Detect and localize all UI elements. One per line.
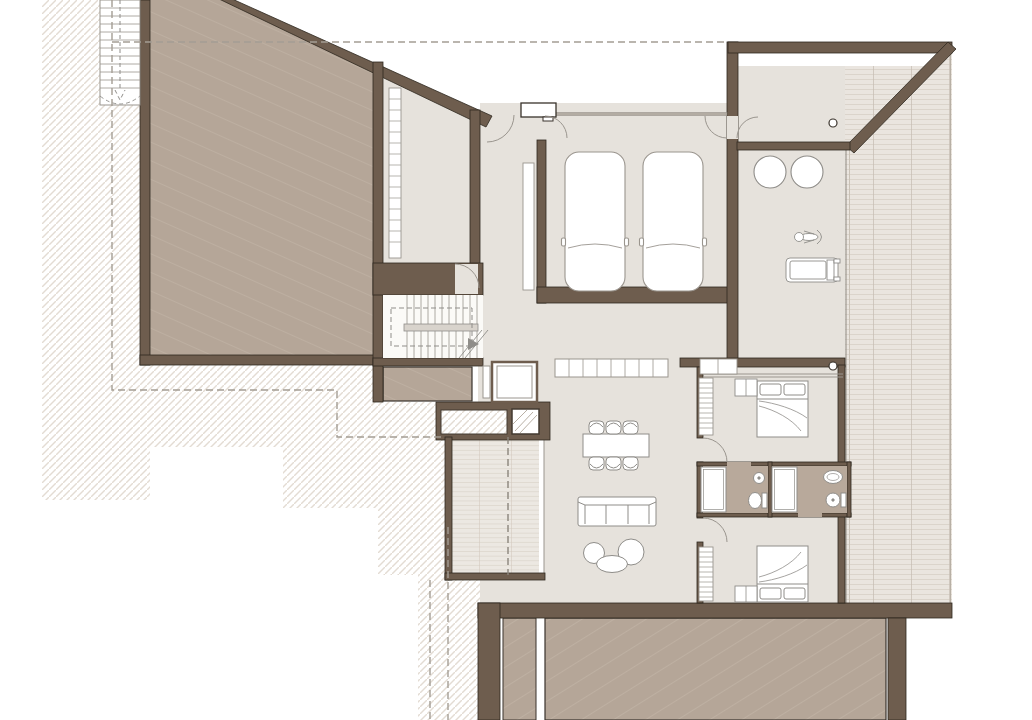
exterior-stair [100,0,140,105]
wall-storage-right [470,110,480,265]
garage-facade-line [546,113,727,116]
pillow [784,384,805,395]
wall-bath-bottom [697,513,851,517]
wall-bath-top [697,462,851,466]
top-right-glass-strip [735,53,944,66]
dining-chairs-bottom [589,457,638,470]
wall-patio-bottom [445,573,545,580]
column [829,119,837,127]
wall-garage-left [537,140,546,303]
car [562,152,629,291]
elevator-door-panel [483,366,490,398]
wall-bottom-right-vertical [888,618,906,720]
lower-roof-strip [503,618,536,720]
pillow [760,588,781,599]
floor-plan-drawing [0,0,1032,720]
chimney [512,409,539,434]
interior-stairs [383,295,488,358]
wall-upper-left-bottom [140,355,383,365]
stair-void [383,367,472,401]
dining-chairs-top [589,421,638,434]
lightwell-hatched [441,410,507,434]
storage-shelf [389,88,401,258]
toilet-tank [762,493,767,508]
dining-table [583,434,649,457]
lower-roof-main [545,618,886,720]
garage-locker [523,163,534,290]
coffee-table [597,556,628,573]
shower [701,467,726,512]
stair-rail [404,324,478,331]
wall-stair-bottom [373,358,483,366]
terrace-deck [845,43,952,603]
bed-2 [757,546,808,602]
pillow [784,588,805,599]
wall-garage-bottom [537,287,737,303]
car [640,152,707,291]
wall-storage-left [373,62,383,402]
column [829,362,837,370]
wall-gym-top [737,142,850,150]
wall-top-right [728,42,952,53]
toilet [749,493,762,509]
wall-bottom-left-vertical [478,603,500,720]
toilet-tank [841,493,846,507]
round-seat [791,156,823,188]
treadmill [786,258,840,282]
elevator [483,362,537,402]
bedroom1-cabinet [700,359,737,374]
floor-plan-canvas [0,0,1032,720]
sofa [578,497,656,526]
covered-patio [452,437,544,575]
bed-1 [757,381,808,437]
sink [824,471,843,484]
kitchen-counter [555,359,668,377]
wall-patio-left [445,437,452,580]
wall-bath-right [847,462,851,517]
gym-room-floor [733,145,848,363]
shower [772,467,797,512]
round-seat [754,156,786,188]
wall-bottom-band [478,603,952,618]
wall-garage-right-gym-left [727,42,738,363]
wall-bath-divider [768,462,772,517]
wall-left-outer [140,0,150,365]
pillow [760,384,781,395]
